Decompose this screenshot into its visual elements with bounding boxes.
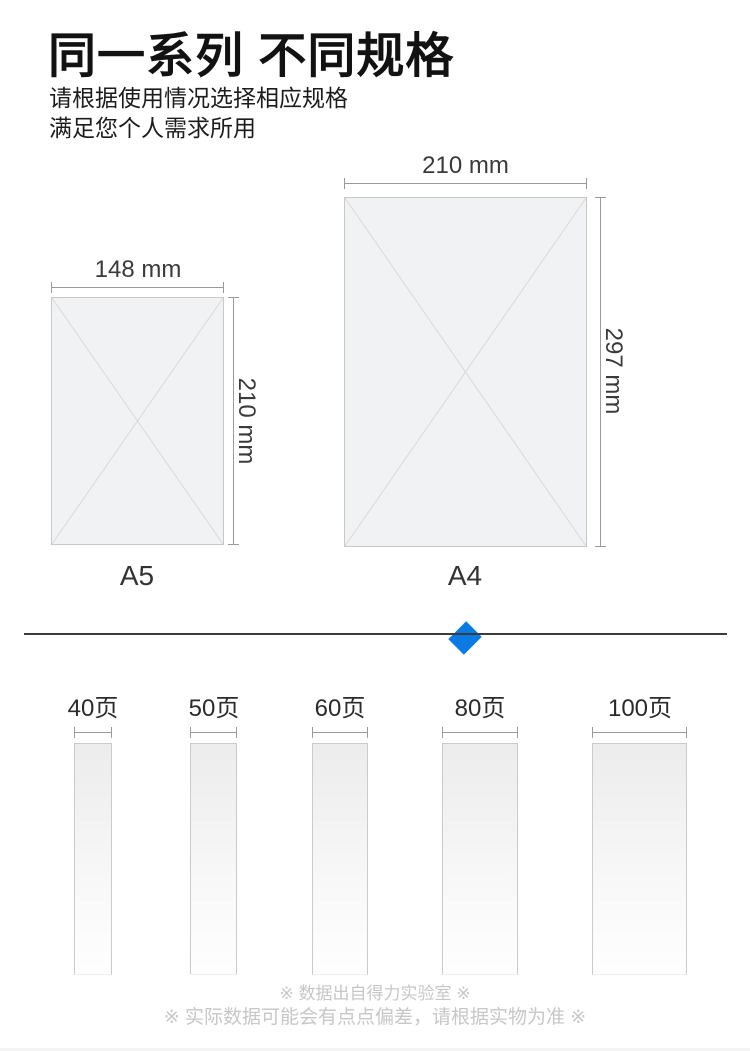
page-count-measure-40	[74, 727, 112, 738]
a4-width-measure-line	[344, 178, 587, 189]
a5-width-measure-line	[51, 282, 224, 293]
a4-height-dimension-label: 297 mm	[600, 321, 626, 421]
product-spec-page: 同一系列 不同规格 请根据使用情况选择相应规格 满足您个人需求所用 148 mm…	[0, 0, 750, 1051]
footnote-disclaimer: ※ 实际数据可能会有点点偏差，请根据实物为准 ※	[0, 1002, 750, 1029]
thickness-bar-80	[442, 743, 518, 975]
thickness-bar-40	[74, 743, 112, 975]
thickness-bar-60	[312, 743, 368, 975]
a5-paper-outline	[51, 297, 224, 545]
divider-diamond-icon	[448, 621, 481, 654]
a4-paper-outline	[344, 197, 587, 547]
thickness-bar-50	[190, 743, 237, 975]
page-count-label-100: 100页	[570, 688, 710, 723]
page-count-label-80: 80页	[410, 688, 550, 723]
a4-paper-name: A4	[405, 560, 525, 592]
page-count-measure-60	[312, 727, 368, 738]
thickness-bar-100	[592, 743, 687, 975]
a4-diagonal-cross	[345, 198, 586, 546]
a5-paper-name: A5	[77, 560, 197, 592]
page-count-measure-100	[592, 727, 687, 738]
subtitle-line-1: 请根据使用情况选择相应规格	[49, 83, 348, 113]
page-count-measure-50	[190, 727, 237, 738]
page-count-measure-80	[442, 727, 518, 738]
page-count-label-40: 40页	[23, 688, 163, 723]
a5-diagonal-cross	[52, 298, 223, 544]
section-divider-line	[24, 633, 727, 635]
page-count-label-60: 60页	[270, 688, 410, 723]
a5-height-dimension-label: 210 mm	[233, 371, 259, 471]
page-title: 同一系列 不同规格	[48, 16, 454, 86]
a5-width-dimension-label: 148 mm	[52, 256, 224, 284]
page-count-label-50: 50页	[144, 688, 284, 723]
subtitle-line-2: 满足您个人需求所用	[49, 113, 348, 143]
a4-width-dimension-label: 210 mm	[344, 152, 587, 180]
page-subtitle: 请根据使用情况选择相应规格 满足您个人需求所用	[49, 83, 348, 143]
footnote-lab-source: ※ 数据出自得力实验室 ※	[0, 979, 750, 1004]
